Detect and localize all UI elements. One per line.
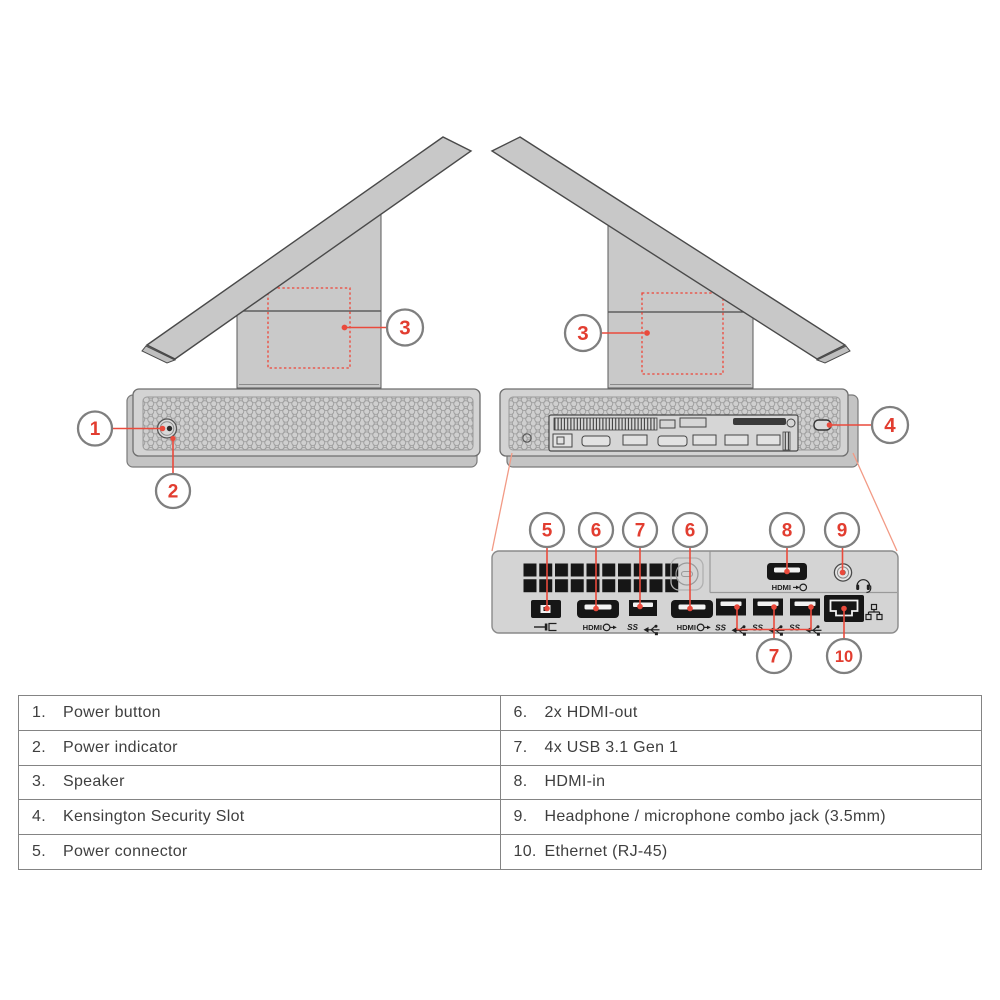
legend-cell: 2.Power indicator bbox=[19, 730, 501, 765]
legend-label: Kensington Security Slot bbox=[63, 808, 245, 825]
callout-number: 3 bbox=[577, 322, 588, 345]
table-row: 4.Kensington Security Slot 9.Headphone /… bbox=[19, 800, 982, 835]
rear-slot-bar bbox=[733, 418, 786, 425]
legend-cell: 7.4x USB 3.1 Gen 1 bbox=[500, 730, 982, 765]
legend-cell: 9.Headphone / microphone combo jack (3.5… bbox=[500, 800, 982, 835]
legend-cell: 8.HDMI-in bbox=[500, 765, 982, 800]
legend-num: 2. bbox=[32, 739, 63, 757]
usb-port-3 bbox=[753, 599, 783, 616]
legend-label: HDMI-in bbox=[545, 773, 606, 790]
legend-label: Speaker bbox=[63, 773, 125, 790]
zoom-leader-right bbox=[853, 453, 897, 551]
legend-num: 7. bbox=[514, 739, 545, 757]
legend-cell: 5.Power connector bbox=[19, 835, 501, 870]
usb-port-1 bbox=[629, 600, 657, 616]
legend-table: 1.Power button 6.2x HDMI-out 2.Power ind… bbox=[18, 695, 982, 870]
callout-number: 9 bbox=[837, 521, 848, 542]
callout-number: 5 bbox=[542, 521, 553, 542]
legend-label: Power indicator bbox=[63, 739, 178, 756]
usb-port-4 bbox=[790, 599, 820, 616]
callout-number: 7 bbox=[635, 521, 646, 542]
callout-number: 6 bbox=[685, 521, 696, 542]
legend-num: 10. bbox=[514, 843, 545, 861]
hdmi-in-text: HDMI bbox=[772, 583, 791, 592]
callout-number: 10 bbox=[835, 648, 853, 666]
legend-label: Power connector bbox=[63, 843, 188, 860]
legend-cell: 6.2x HDMI-out bbox=[500, 696, 982, 731]
table-row: 2.Power indicator 7.4x USB 3.1 Gen 1 bbox=[19, 730, 982, 765]
callout-number: 6 bbox=[591, 521, 602, 542]
legend-num: 5. bbox=[32, 843, 63, 861]
table-row: 3.Speaker 8.HDMI-in bbox=[19, 765, 982, 800]
legend-label: 2x HDMI-out bbox=[545, 704, 638, 721]
legend-num: 4. bbox=[32, 808, 63, 826]
callout-number: 7 bbox=[769, 647, 780, 668]
callout-number: 4 bbox=[884, 414, 896, 437]
device-rear-view bbox=[492, 137, 858, 467]
legend-label: 4x USB 3.1 Gen 1 bbox=[545, 739, 679, 756]
rear-vent-strip bbox=[783, 432, 790, 450]
legend-num: 6. bbox=[514, 704, 545, 722]
legend-label: Ethernet (RJ-45) bbox=[545, 843, 668, 860]
legend-num: 1. bbox=[32, 704, 63, 722]
legend-num: 3. bbox=[32, 773, 63, 791]
callout-number: 2 bbox=[168, 482, 179, 503]
legend-cell: 3.Speaker bbox=[19, 765, 501, 800]
usb-port-2 bbox=[716, 599, 746, 616]
device-front-view bbox=[127, 137, 480, 467]
legend-num: 9. bbox=[514, 808, 545, 826]
callout-number: 3 bbox=[399, 317, 410, 340]
legend-label: Headphone / microphone combo jack (3.5mm… bbox=[545, 808, 886, 825]
speaker-grille-pattern bbox=[143, 397, 473, 450]
table-row: 1.Power button 6.2x HDMI-out bbox=[19, 696, 982, 731]
rear-port-panel: HDMI bbox=[492, 551, 898, 636]
legend-cell: 10.Ethernet (RJ-45) bbox=[500, 835, 982, 870]
legend-num: 8. bbox=[514, 773, 545, 791]
zoom-leader-left bbox=[492, 453, 512, 551]
manual-page: SS HDMI bbox=[0, 0, 1000, 1000]
vent-fins bbox=[554, 418, 657, 430]
rear-port-row bbox=[553, 434, 780, 447]
table-row: 5.Power connector 10.Ethernet (RJ-45) bbox=[19, 835, 982, 870]
legend-label: Power button bbox=[63, 704, 161, 721]
legend-cell: 4.Kensington Security Slot bbox=[19, 800, 501, 835]
rear-port-recess bbox=[549, 415, 798, 451]
legend-cell: 1.Power button bbox=[19, 696, 501, 731]
callout-number: 8 bbox=[782, 521, 793, 542]
power-indicator-led bbox=[167, 426, 172, 431]
callout-number: 1 bbox=[90, 419, 101, 440]
